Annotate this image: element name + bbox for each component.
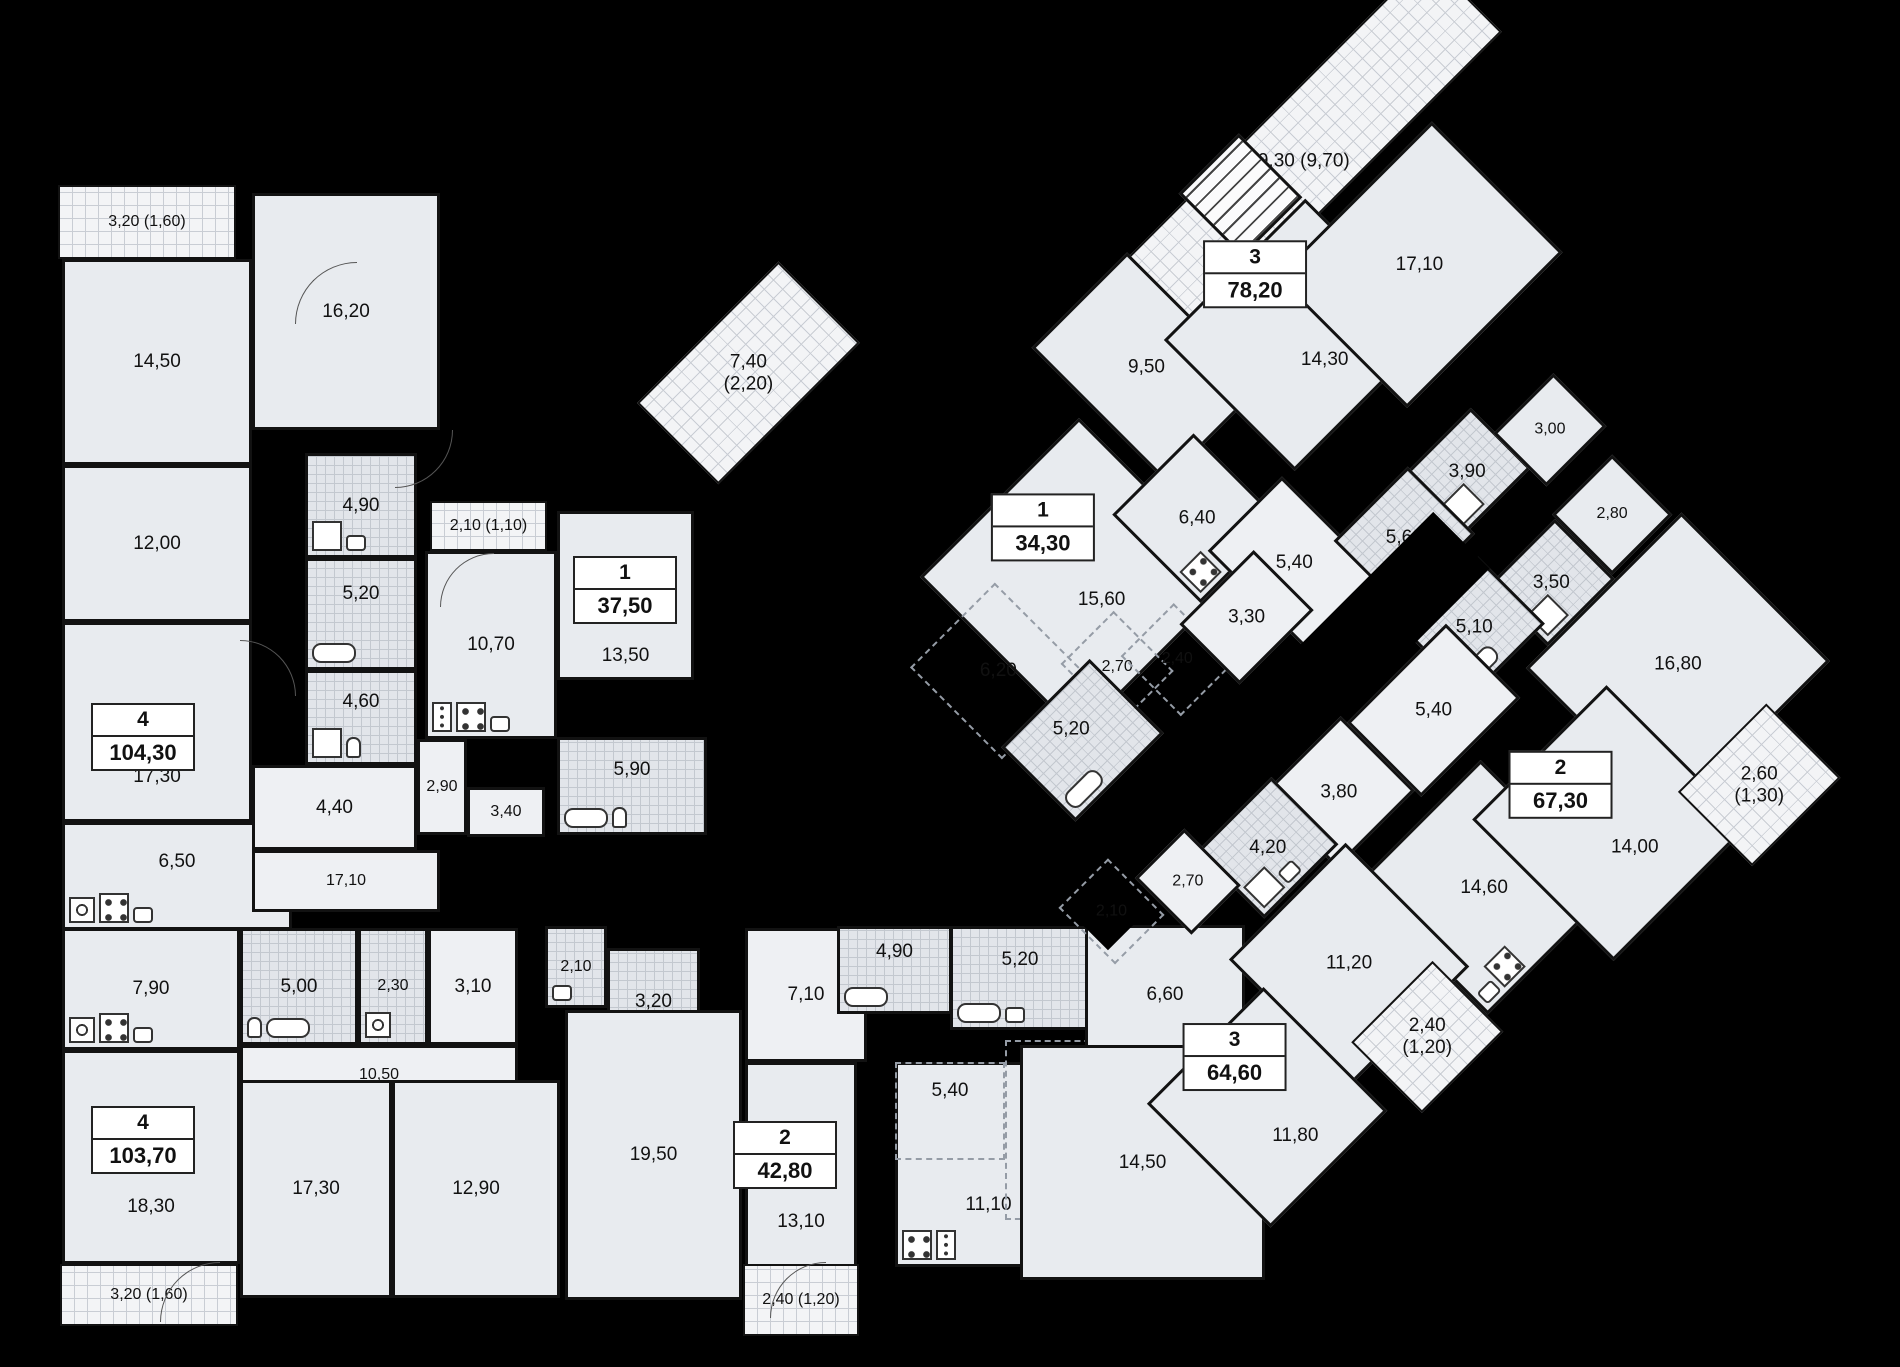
toilet-icon — [612, 807, 627, 828]
hall-2-90: 2,90 — [417, 739, 467, 835]
badge-apt-42-80: 242,80 — [733, 1121, 837, 1189]
washer-icon — [365, 1012, 391, 1038]
tub-icon — [312, 643, 356, 663]
sink-icon — [1476, 979, 1501, 1004]
room-17-10-r-label: 17,10 — [1312, 175, 1526, 354]
fridge-icon — [936, 1230, 956, 1260]
room-3-00-label: 3,00 — [1510, 395, 1589, 464]
hall-4-40: 4,40 — [252, 765, 417, 850]
badge-apt-42-80-area: 42,80 — [735, 1155, 835, 1187]
badge-apt-64-60-area: 64,60 — [1185, 1057, 1285, 1089]
badge-apt-104-30-rooms: 4 — [93, 705, 193, 737]
hall-17-10: 17,10 — [252, 850, 440, 912]
hall-3-10: 3,10 — [428, 928, 518, 1045]
room-12-90: 12,90 — [392, 1080, 560, 1298]
shower-icon — [312, 521, 342, 551]
room-14-50-label: 14,50 — [65, 262, 249, 462]
bath-2-30: 2,30 — [358, 928, 428, 1045]
stove-icon — [902, 1230, 932, 1260]
badge-apt-104-30: 4104,30 — [91, 703, 195, 771]
sink-icon — [133, 1027, 153, 1043]
zone-2-10-a3-label: 2,10 — [1079, 873, 1145, 949]
tub-icon — [844, 987, 888, 1007]
toilet-icon — [247, 1017, 262, 1038]
balcony-7-40: 7,40(2,20) — [637, 262, 860, 485]
hall-3-40: 3,40 — [467, 787, 545, 837]
door-arc — [240, 640, 296, 696]
badge-apt-103-70-rooms: 4 — [93, 1108, 193, 1140]
zone-5-40-label: 5,40 — [897, 1044, 1003, 1138]
room-19-50: 19,50 — [565, 1010, 742, 1300]
bath-5-20: 5,20 — [305, 558, 417, 670]
room-17-30-b-label: 17,30 — [243, 1083, 389, 1295]
stove-icon — [99, 1013, 129, 1043]
fridge-icon — [432, 702, 452, 732]
room-2-80-label: 2,80 — [1573, 475, 1652, 554]
badge-apt-67-30-area: 67,30 — [1511, 785, 1611, 817]
stove-icon — [99, 893, 129, 923]
balcony-3-20-top-label: 3,20 (1,60) — [60, 187, 234, 257]
badge-apt-34-30-rooms: 1 — [993, 495, 1093, 527]
badge-apt-34-30: 134,30 — [991, 493, 1095, 561]
sink-icon — [490, 716, 510, 732]
bath-5-00: 5,00 — [240, 928, 358, 1045]
badge-apt-64-60: 364,60 — [1183, 1023, 1287, 1091]
hall-4-40-label: 4,40 — [255, 768, 414, 847]
zone-5-40: 5,40 — [895, 1062, 1005, 1160]
tub-icon — [266, 1018, 310, 1038]
sink-icon — [552, 985, 572, 1001]
bath-5-90: 5,90 — [557, 737, 707, 835]
badge-apt-67-30-rooms: 2 — [1511, 753, 1611, 785]
badge-apt-103-70: 4103,70 — [91, 1106, 195, 1174]
door-arc — [395, 430, 453, 488]
room-12-00: 12,00 — [62, 465, 252, 622]
stove-icon — [456, 702, 486, 732]
floor-plan-canvas: 3,20 (1,60)14,5012,0016,2017,306,504,905… — [0, 0, 1900, 1367]
hall-3-10-label: 3,10 — [431, 931, 515, 1042]
shower-icon — [312, 728, 342, 758]
hall-2-90-label: 2,90 — [420, 742, 464, 832]
balcony-3-20-top: 3,20 (1,60) — [58, 185, 236, 259]
room-12-00-label: 12,00 — [65, 468, 249, 619]
badge-apt-67-30: 267,30 — [1509, 751, 1613, 819]
washer-icon — [69, 1017, 95, 1043]
toilet-icon — [346, 737, 361, 758]
room-19-50-label: 19,50 — [568, 1013, 739, 1297]
badge-apt-37-50-area: 37,50 — [575, 590, 675, 622]
balcony-2-40-r-label: 2,40(1,20) — [1372, 989, 1483, 1085]
badge-apt-34-30-area: 34,30 — [993, 527, 1093, 559]
room-14-50: 14,50 — [62, 259, 252, 465]
hall-5-40-l-label: 5,40 — [1367, 661, 1501, 760]
badge-apt-37-50-rooms: 1 — [575, 558, 675, 590]
badge-apt-78-20: 378,20 — [1203, 240, 1307, 308]
wc-2-10: 2,10 — [545, 926, 607, 1008]
badge-apt-64-60-rooms: 3 — [1185, 1025, 1285, 1057]
badge-apt-37-50: 137,50 — [573, 556, 677, 624]
badge-apt-78-20-rooms: 3 — [1205, 242, 1305, 274]
badge-apt-78-20-area: 78,20 — [1205, 274, 1305, 306]
badge-apt-104-30-area: 104,30 — [93, 737, 193, 769]
bath-4-60: 4,60 — [305, 670, 417, 765]
tub-icon — [1061, 766, 1106, 811]
bath-5-90-label: 5,90 — [560, 724, 704, 816]
room-17-30-b: 17,30 — [240, 1080, 392, 1298]
sink-icon — [133, 907, 153, 923]
badge-apt-42-80-rooms: 2 — [735, 1123, 835, 1155]
sink-icon — [346, 535, 366, 551]
balcony-7-40-label: 7,40(2,20) — [650, 317, 846, 428]
tub-icon — [564, 808, 608, 828]
hall-3-40-label: 3,40 — [470, 790, 542, 834]
hall-17-10-label: 17,10 — [255, 853, 437, 909]
badge-apt-103-70-area: 103,70 — [93, 1140, 193, 1172]
kitchen-7-90: 7,90 — [62, 928, 240, 1050]
sink-icon — [1277, 859, 1302, 884]
room-12-90-label: 12,90 — [395, 1083, 557, 1295]
washer-icon — [69, 897, 95, 923]
hall-2-70-a3-label: 2,70 — [1156, 845, 1220, 919]
